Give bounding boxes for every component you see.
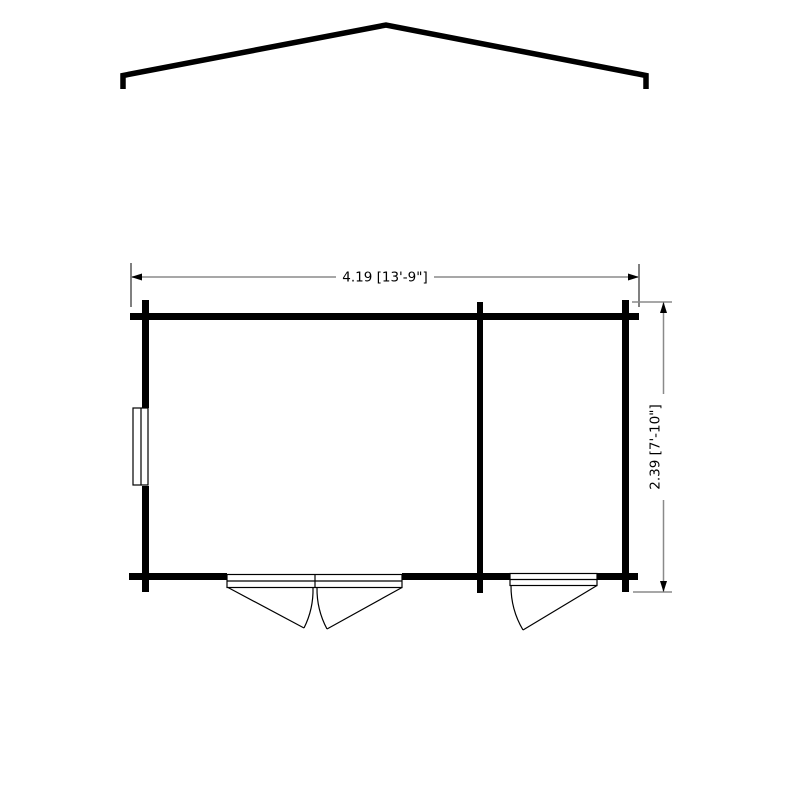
depth-dimension-label: 2.39 [7'-10"] [648,404,664,489]
double-door-right-leaf [327,588,402,630]
single-door [510,574,597,631]
depth-arrow-bottom [660,581,667,592]
double-door [227,575,402,630]
roof-profile-line [123,25,646,89]
single-door-leaf [523,586,597,631]
walls [129,300,639,593]
depth-dimension: 2.39 [7'-10"] [632,302,672,592]
double-door-left-leaf [228,588,304,629]
width-arrow-left [131,274,142,281]
bottom-wall-right-segment [597,573,638,580]
bottom-wall-middle-segment [402,573,510,580]
partition-wall [477,302,483,593]
double-door-left-swing-arc [304,588,313,629]
drawing-canvas: 4.19 [13'-9"] 2.39 [7'-10"] [0,0,800,800]
bottom-wall-left-segment [129,573,227,580]
left-wall-upper-segment [142,300,149,408]
floor-plan-drawing: 4.19 [13'-9"] 2.39 [7'-10"] [0,0,800,800]
roof-outline [123,25,646,89]
width-dimension-label: 4.19 [13'-9"] [342,270,427,286]
depth-arrow-top [660,302,667,313]
right-wall [622,300,629,592]
width-arrow-right [628,274,639,281]
double-door-right-swing-arc [317,588,327,630]
width-dimension: 4.19 [13'-9"] [131,263,639,307]
single-door-swing-arc [511,586,523,631]
top-wall [130,313,639,320]
window [133,408,148,485]
